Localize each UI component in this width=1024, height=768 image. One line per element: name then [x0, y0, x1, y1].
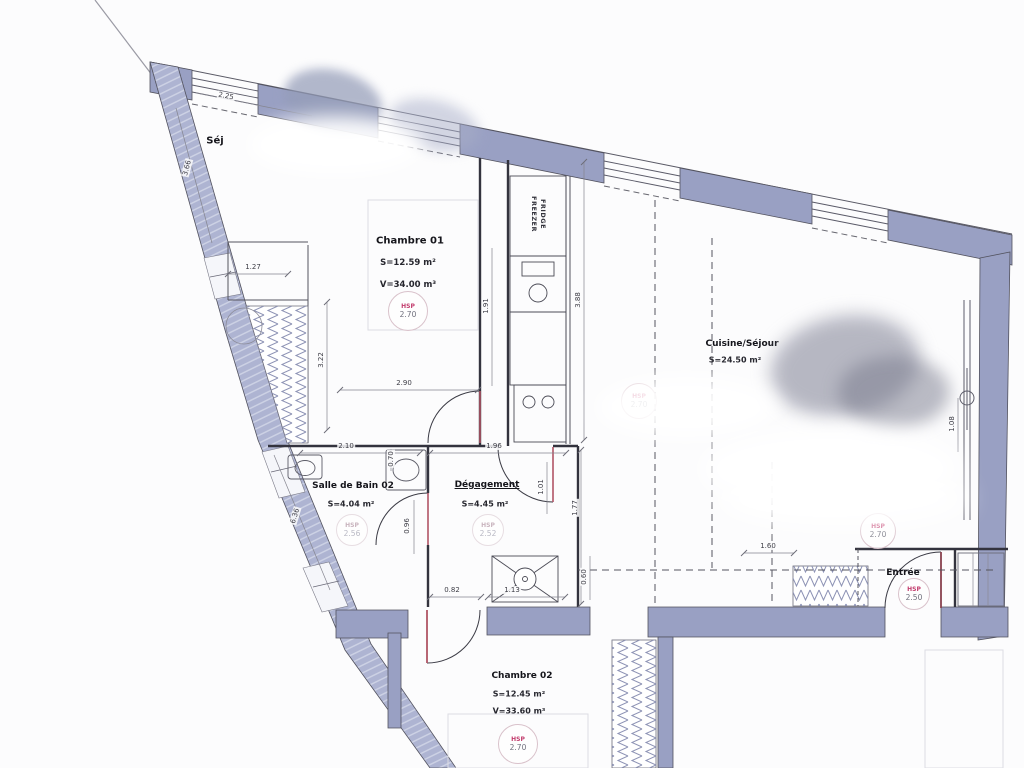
dimension-label: 3.88	[574, 291, 582, 309]
dimension-label: 3.22	[317, 351, 325, 369]
dimension-label: 1.01	[537, 478, 545, 496]
room-area-chambre02: S=12.45 m²	[493, 690, 545, 699]
dimension-label: 0.70	[387, 450, 395, 468]
floor-plan-drawing	[0, 0, 1024, 768]
room-area-chambre01: S=12.59 m²	[380, 258, 436, 268]
dimension-label: 2.10	[337, 442, 355, 450]
room-label-sejour: Séj	[206, 136, 223, 147]
dimension-label: 1.91	[482, 297, 490, 315]
room-area-sdb: S=4.04 m²	[328, 500, 375, 509]
dimension-label: 1.77	[571, 499, 579, 517]
room-area-degagement: S=4.45 m²	[462, 500, 509, 509]
dimension-label: 0.82	[443, 586, 461, 594]
dimension-label: 0.96	[403, 517, 411, 535]
dimension-label: 1.60	[759, 542, 777, 550]
room-label-chambre02: Chambre 02	[491, 671, 552, 681]
lower-right-room	[925, 650, 1003, 768]
hsp-badge-degagement: HSP 2.52	[472, 514, 504, 546]
hsp-badge-sdb: HSP 2.56	[336, 514, 368, 546]
room-label-chambre01: Chambre 01	[376, 236, 444, 247]
worktop-unit	[510, 312, 566, 385]
fridge-freezer-label: FRIDGE FREEZER	[529, 196, 547, 232]
outer-walls	[95, 0, 1012, 768]
tall-window	[960, 300, 974, 520]
hsp-badge-entree: HSP 2.50	[898, 578, 930, 610]
shower	[492, 556, 558, 602]
room-area-cuisine: S=24.50 m²	[709, 356, 761, 365]
room-volume-chambre01: V=34.00 m³	[380, 280, 436, 290]
dimension-label: 1.96	[485, 442, 503, 450]
dimension-label: 1.27	[244, 263, 262, 271]
room-label-entree: Entrée	[886, 568, 920, 578]
hsp-badge-cuisine-right: HSP 2.70	[860, 513, 896, 549]
room-label-sdb: Salle de Bain 02	[312, 481, 394, 491]
dimension-label: 2.90	[395, 379, 413, 387]
dimension-label: 1.08	[948, 415, 956, 433]
dimension-label: 1.13	[503, 586, 521, 594]
room-volume-chambre02: V=33.60 m³	[493, 707, 546, 716]
right-wall	[978, 252, 1010, 640]
hsp-badge-chambre02: HSP 2.70	[498, 724, 538, 764]
hsp-badge-cuisine-left: HSP 2.70	[621, 383, 657, 419]
room-label-degagement: Dégagement	[455, 480, 520, 490]
floor-plan: Séj Chambre 01 S=12.59 m² V=34.00 m³ Cui…	[0, 0, 1024, 768]
oven-unit	[514, 385, 566, 442]
dimension-label: 0.60	[580, 568, 588, 586]
hsp-badge-chambre01: HSP 2.70	[388, 291, 428, 331]
room-label-cuisine: Cuisine/Séjour	[705, 339, 778, 349]
